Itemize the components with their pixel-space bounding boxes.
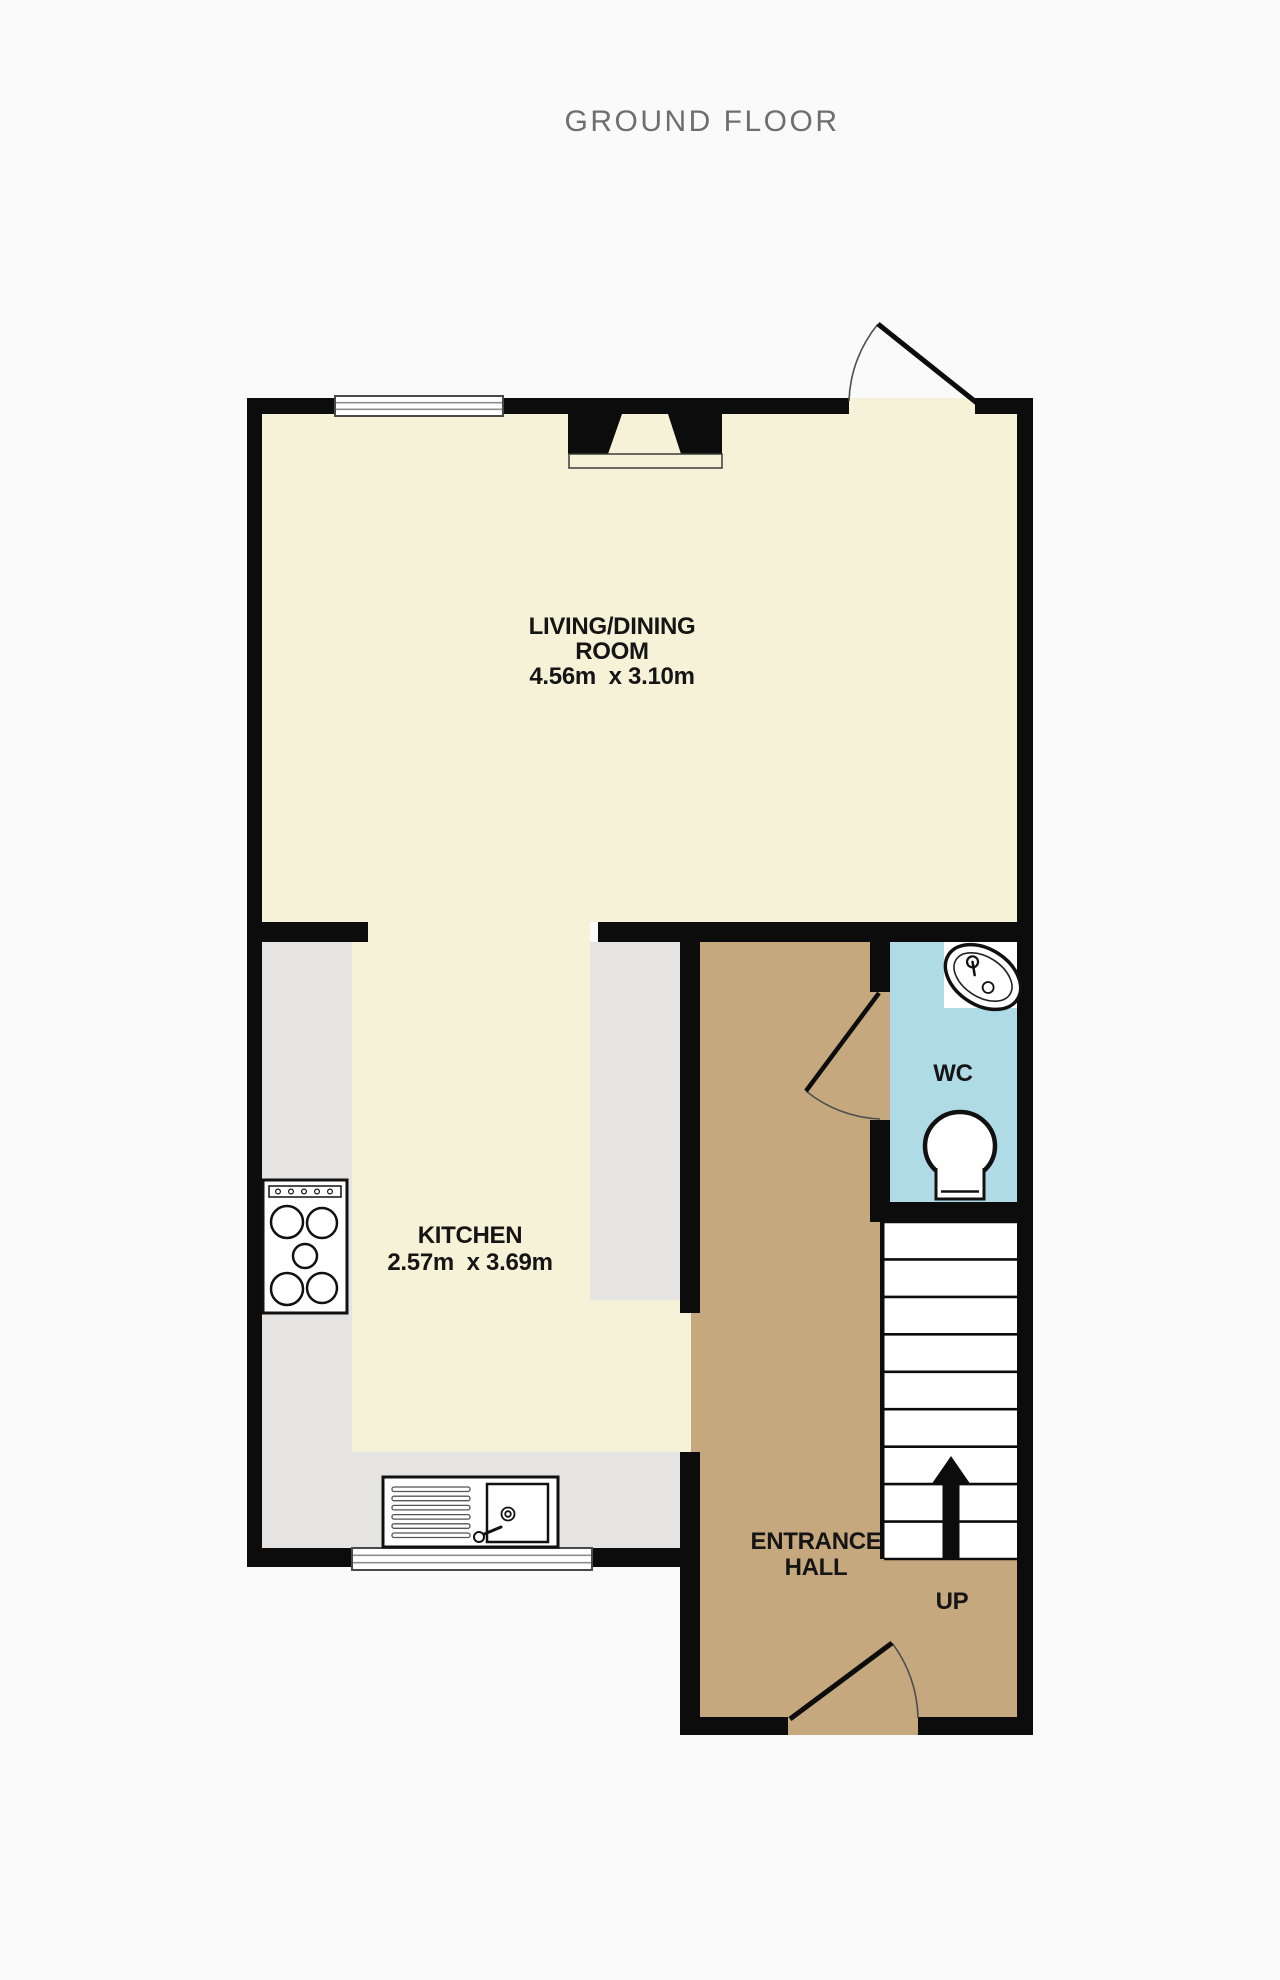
- kitchen-label: KITCHEN 2.57m x 3.69m: [295, 1222, 645, 1276]
- hall-name-line2: HALL: [666, 1555, 966, 1581]
- living-room-label: LIVING/DINING ROOM 4.56m x 3.10m: [437, 614, 787, 689]
- kitchen-name: KITCHEN: [295, 1222, 645, 1249]
- wc-label: WC: [878, 1060, 1028, 1088]
- entrance-hall-label: ENTRANCE HALL: [666, 1529, 966, 1581]
- fireplace-icon: [568, 413, 722, 468]
- front-door-threshold: [849, 398, 975, 414]
- window-icon-living: [335, 396, 503, 416]
- rear-door-threshold: [788, 1717, 918, 1735]
- kitchen-dimensions: 2.57m x 3.69m: [295, 1249, 645, 1276]
- kitchen-sink-icon: [383, 1477, 558, 1547]
- living-room-dimensions: 4.56m x 3.10m: [437, 664, 787, 689]
- wc-door-swing-icon: [806, 993, 880, 1119]
- window-icon-kitchen: [352, 1548, 592, 1570]
- living-room-name-line1: LIVING/DINING: [437, 614, 787, 639]
- front-door-swing-icon: [849, 324, 977, 403]
- entrance-door-swing-icon: [790, 1643, 918, 1719]
- stairs-up-label: UP: [902, 1588, 1002, 1616]
- wc-sink-icon: [933, 931, 1032, 1023]
- hall-name-line1: ENTRANCE: [666, 1529, 966, 1555]
- living-room-name-line2: ROOM: [437, 639, 787, 664]
- wc-name: WC: [878, 1060, 1028, 1088]
- floorplan-canvas: GROUND FLOOR: [0, 0, 1280, 1980]
- toilet-icon: [925, 1112, 995, 1199]
